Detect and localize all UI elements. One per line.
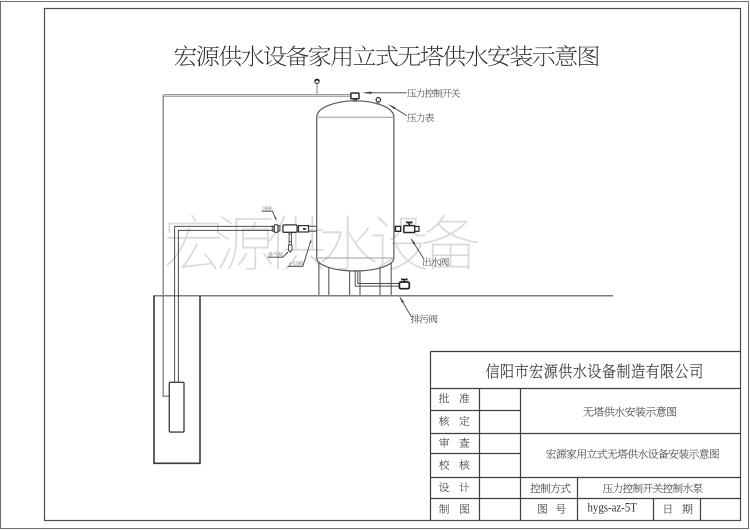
svg-text:hygs-az-5T: hygs-az-5T <box>588 501 638 515</box>
